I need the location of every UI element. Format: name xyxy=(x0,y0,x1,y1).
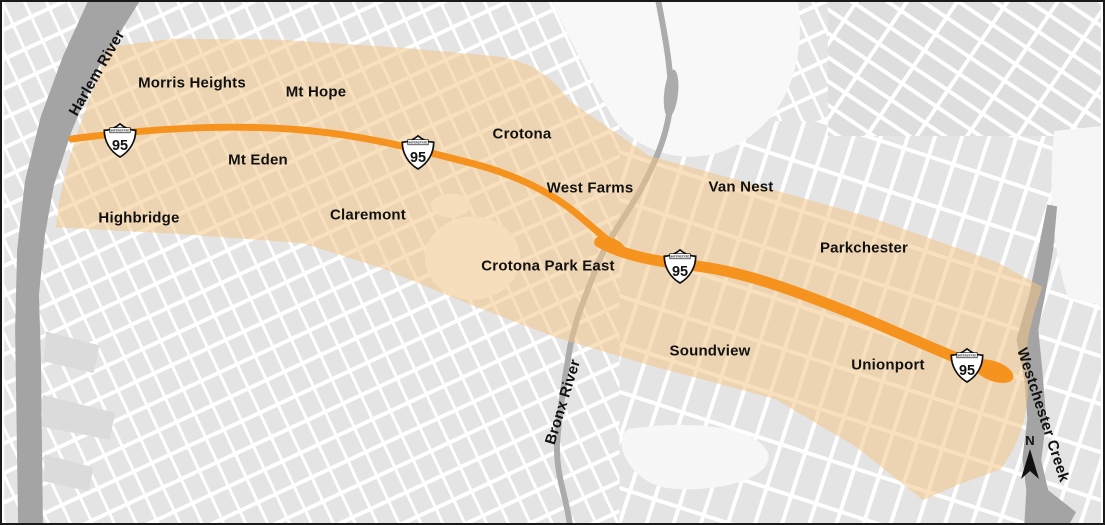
map-canvas xyxy=(2,2,1103,523)
north-arrow: N xyxy=(1015,433,1045,481)
bronx-corridor-map: Morris HeightsMt HopeCrotonaMt EdenWest … xyxy=(0,0,1105,525)
north-arrow-label: N xyxy=(1025,433,1034,448)
street-grid-northeast xyxy=(828,2,1101,136)
north-arrow-glyph xyxy=(1021,449,1039,479)
